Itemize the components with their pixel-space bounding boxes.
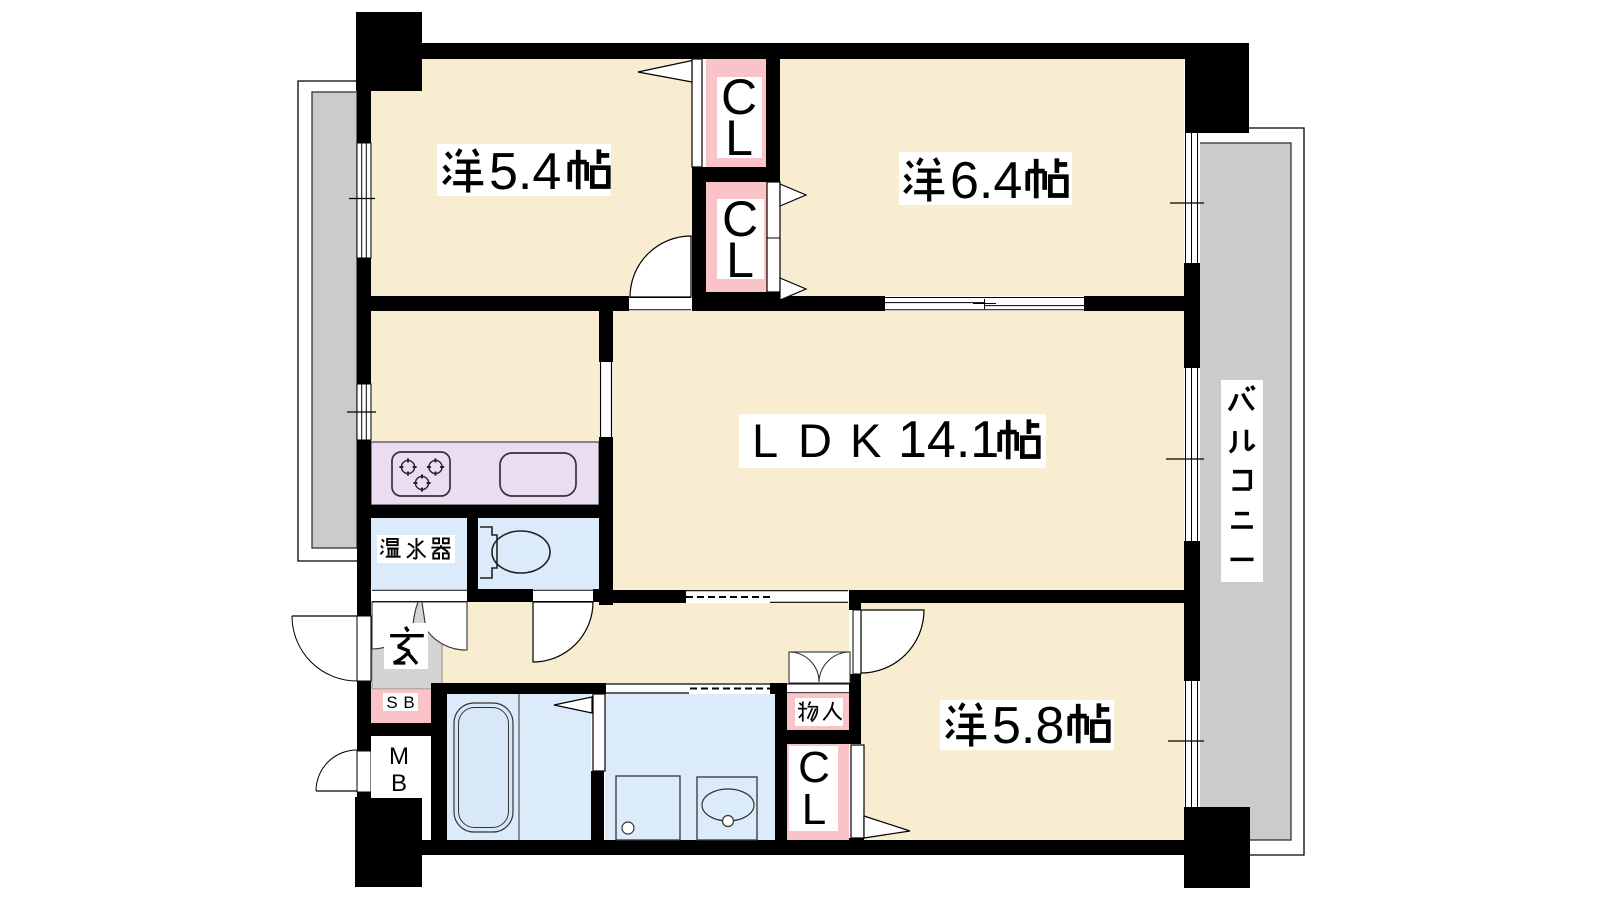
svg-text:D: D — [798, 414, 832, 467]
svg-text:B: B — [391, 770, 407, 797]
svg-text:K: K — [850, 414, 881, 467]
svg-text:6.4: 6.4 — [950, 152, 1022, 210]
svg-text:14.1: 14.1 — [898, 411, 999, 469]
svg-text:L: L — [725, 110, 753, 166]
svg-text:S: S — [386, 693, 397, 712]
svg-text:B: B — [403, 693, 414, 712]
svg-text:L: L — [726, 232, 754, 288]
svg-text:L: L — [752, 414, 778, 467]
svg-text:5.8: 5.8 — [992, 697, 1064, 755]
svg-text:M: M — [389, 743, 409, 770]
svg-text:5.4: 5.4 — [489, 143, 561, 201]
svg-text:L: L — [802, 785, 826, 834]
